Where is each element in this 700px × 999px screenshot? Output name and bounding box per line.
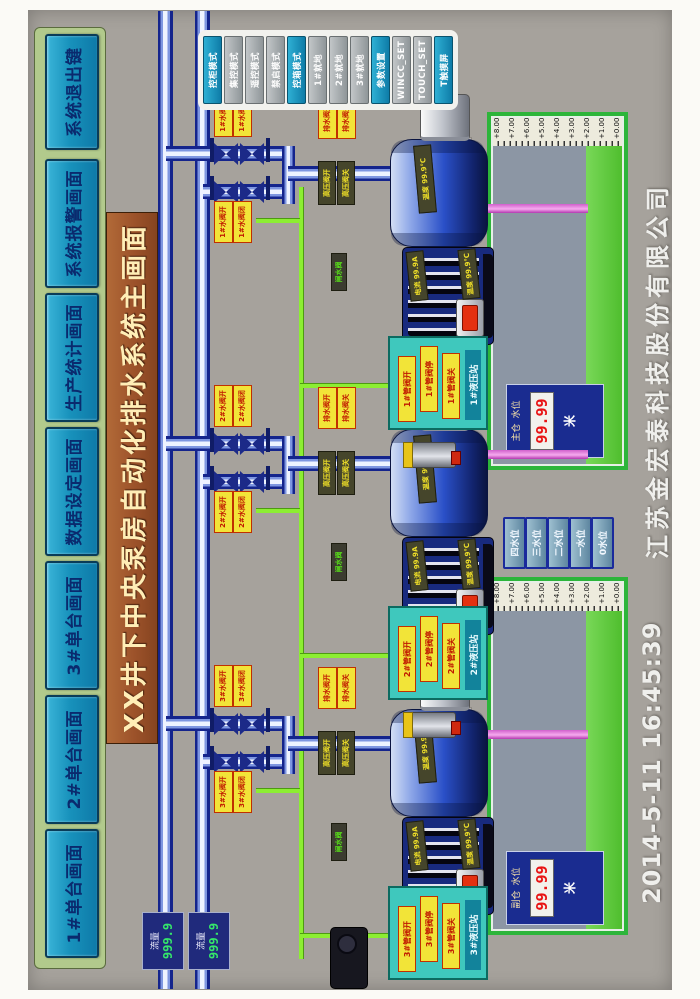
- pump-cap: [391, 523, 485, 536]
- pipe-valve-close-button[interactable]: 1#管阀关: [442, 353, 460, 419]
- valve-status-label: 排水阀开: [318, 387, 337, 429]
- pipe-flange: [210, 176, 214, 200]
- level-button-3[interactable]: 三水位: [525, 517, 548, 569]
- pipe-flange: [210, 708, 214, 732]
- hydraulic-station-title: 3#液压站: [465, 900, 481, 970]
- hydraulic-pump-graphic: [408, 442, 456, 468]
- pipe-valve-close-button[interactable]: 3#管阀关: [442, 903, 460, 969]
- pump-graphic: [390, 139, 488, 247]
- pipe-flange: [210, 746, 214, 770]
- valve-status-label: 1#水阀开: [214, 201, 233, 243]
- pump-cap: [391, 803, 485, 816]
- hydraulic-panel-2: 2#管阀开 2#管阀停 2#管阀关 2#液压站: [388, 606, 488, 700]
- pump-unit-3: 3#水阀开 3#水阀闭 3#水阀开 3#水阀闭 排水阀开 排水阀关 高压阀开 高…: [0, 665, 700, 915]
- hp-valve-label: 高压阀关: [337, 451, 355, 495]
- level-button-1[interactable]: 一水位: [569, 517, 592, 569]
- control-button-cabinet-mode[interactable]: 控柜模式: [203, 36, 222, 104]
- level-button-0[interactable]: 0水位: [591, 517, 614, 569]
- hp-valve-label: 高压阀关: [337, 161, 355, 205]
- pipe-flange: [266, 428, 270, 452]
- control-button-remote-mode[interactable]: 遥控模式: [245, 36, 264, 104]
- flow-label: 流量: [198, 932, 207, 950]
- hp-valve-label: 高压阀开: [318, 731, 336, 775]
- pipe-valve-open-button[interactable]: 3#管阀开: [398, 906, 416, 972]
- pipe-flange: [266, 708, 270, 732]
- gate-valve-label: 闸水阀: [331, 253, 347, 291]
- control-mode-panel: 控柜模式 集控模式 遥控模式 禁启模式 控箱模式 1#就地 2#就地 3#就地 …: [198, 30, 458, 110]
- pipe-flange: [266, 466, 270, 490]
- pipe-valve-stop-button[interactable]: 3#管阀停: [420, 896, 438, 962]
- drain-pump-graphic: [330, 927, 368, 989]
- control-button-box-mode[interactable]: 控箱模式: [287, 36, 306, 104]
- control-button-touch-screen[interactable]: T触摸屏: [434, 36, 453, 104]
- control-button-param-setting[interactable]: 参数设置: [371, 36, 390, 104]
- valve-status-label: 2#水阀闭: [233, 385, 252, 427]
- valve-status-label: 3#水阀闭: [233, 771, 252, 813]
- hydraulic-control-line: [256, 219, 300, 223]
- hydraulic-station-title: 2#液压站: [465, 620, 481, 690]
- flow-value: 999.9: [208, 923, 220, 959]
- control-button-central-mode[interactable]: 集控模式: [224, 36, 243, 104]
- valve-status-label: 排水阀关: [337, 667, 356, 709]
- flow-meter-2: 流量 999.9: [188, 912, 230, 970]
- control-button-inhibit-mode[interactable]: 禁启模式: [266, 36, 285, 104]
- flow-meter-1: 流量 999.9: [142, 912, 184, 970]
- hp-valve-label: 高压阀关: [337, 731, 355, 775]
- control-button-local-2[interactable]: 2#就地: [329, 36, 348, 104]
- control-button-local-1[interactable]: 1#就地: [308, 36, 327, 104]
- control-button-wincc-set[interactable]: WINCC_SET: [392, 36, 411, 104]
- gate-valve-label: 闸水阀: [331, 543, 347, 581]
- valve-status-label: 3#水阀开: [214, 665, 233, 707]
- motor-indicator: [456, 299, 484, 337]
- valve-status-label: 2#水阀开: [214, 491, 233, 533]
- hydraulic-control-line: [256, 509, 300, 513]
- pipe-flange: [266, 176, 270, 200]
- valve-status-label: 3#水阀开: [214, 771, 233, 813]
- valve-status-label: 排水阀开: [318, 667, 337, 709]
- valve-status-label: 3#水阀闭: [233, 665, 252, 707]
- scada-main-screen: 1#单台画面 2#单台画面 3#单台画面 数据设定画面 生产统计画面 系统报警画…: [0, 0, 700, 999]
- flow-label: 流量: [152, 932, 161, 950]
- gate-valve-label: 闸水阀: [331, 823, 347, 861]
- pipe-valve-stop-button[interactable]: 2#管阀停: [420, 616, 438, 682]
- hp-valve-label: 高压阀开: [318, 161, 336, 205]
- hydraulic-panel-3: 3#管阀开 3#管阀停 3#管阀关 3#液压站: [388, 886, 488, 980]
- pipe-flange: [266, 138, 270, 162]
- level-button-2[interactable]: 二水位: [547, 517, 570, 569]
- hydraulic-panel-1: 1#管阀开 1#管阀停 1#管阀关 1#液压站: [388, 336, 488, 430]
- pipe-valve-stop-button[interactable]: 1#管阀停: [420, 346, 438, 412]
- pipe-flange: [266, 746, 270, 770]
- pump-cap: [391, 233, 485, 246]
- control-button-local-3[interactable]: 3#就地: [350, 36, 369, 104]
- pump-unit-2: 2#水阀开 2#水阀闭 2#水阀开 2#水阀闭 排水阀开 排水阀关 高压阀开 高…: [0, 385, 700, 635]
- valve-status-label: 2#水阀开: [214, 385, 233, 427]
- rotated-photo-frame: 1#单台画面 2#单台画面 3#单台画面 数据设定画面 生产统计画面 系统报警画…: [0, 0, 700, 999]
- pump-cap: [391, 140, 485, 153]
- pipe-valve-open-button[interactable]: 1#管阀开: [398, 356, 416, 422]
- control-button-touch-set[interactable]: TOUCH_SET: [413, 36, 432, 104]
- valve-status-label: 排水阀关: [337, 387, 356, 429]
- valve-status-label: 2#水阀闭: [233, 491, 252, 533]
- pump-unit-1: 1#水阀开 1#水阀闭 1#水阀开 1#水阀闭 排水阀开 排水阀关 高压阀开 高…: [0, 95, 700, 345]
- pipe-valve-open-button[interactable]: 2#管阀开: [398, 626, 416, 692]
- flow-value: 999.9: [162, 923, 174, 959]
- pipe-valve-close-button[interactable]: 2#管阀关: [442, 623, 460, 689]
- pipe-flange: [210, 428, 214, 452]
- valve-status-label: 1#水阀闭: [233, 201, 252, 243]
- hydraulic-control-line: [256, 789, 300, 793]
- motor-base: [483, 254, 493, 338]
- hydraulic-pump-graphic: [408, 712, 456, 738]
- level-button-4[interactable]: 四水位: [503, 517, 526, 569]
- pipe-flange: [210, 138, 214, 162]
- pipe-flange: [210, 466, 214, 490]
- hp-valve-label: 高压阀开: [318, 451, 336, 495]
- hydraulic-station-title: 1#液压站: [465, 350, 481, 420]
- hydraulic-control-line: [300, 654, 388, 658]
